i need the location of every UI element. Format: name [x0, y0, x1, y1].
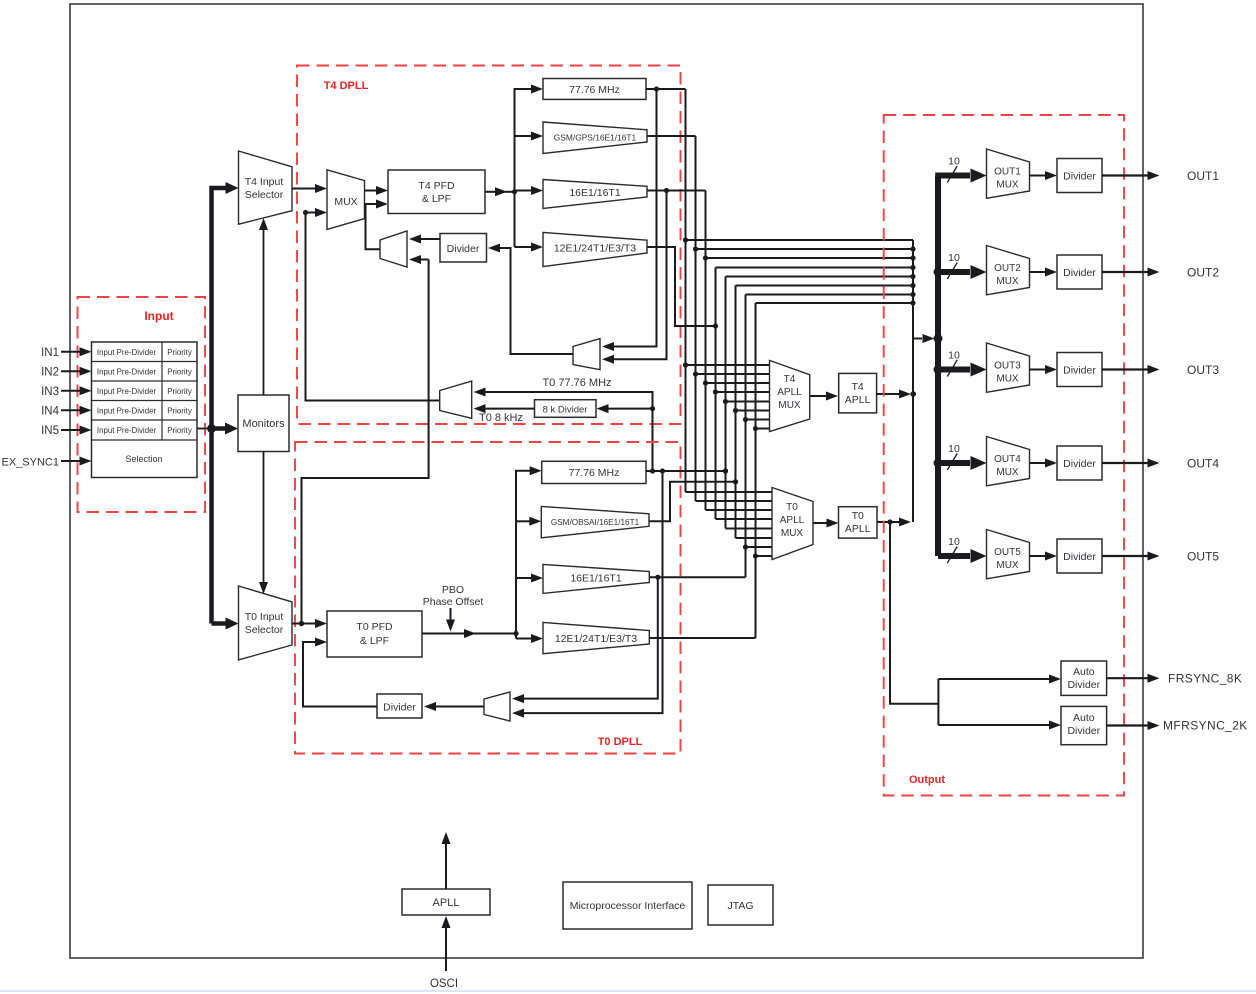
svg-text:Auto: Auto: [1073, 712, 1095, 724]
svg-text:& LPF: & LPF: [360, 635, 389, 647]
svg-text:OUT1: OUT1: [1187, 169, 1219, 183]
svg-text:Priority: Priority: [167, 348, 192, 357]
svg-text:OUT5: OUT5: [994, 547, 1021, 558]
svg-text:Divider: Divider: [1067, 725, 1100, 737]
svg-text:MUX: MUX: [334, 196, 357, 208]
svg-text:IN2: IN2: [41, 366, 59, 378]
svg-text:Divider: Divider: [447, 243, 480, 255]
svg-text:Input Pre-Divider: Input Pre-Divider: [97, 426, 157, 435]
svg-text:T4 DPLL: T4 DPLL: [324, 80, 369, 92]
svg-text:Divider: Divider: [383, 702, 416, 714]
svg-text:16E1/16T1: 16E1/16T1: [569, 187, 621, 199]
svg-text:12E1/24T1/E3/T3: 12E1/24T1/E3/T3: [554, 243, 636, 255]
svg-text:Input Pre-Divider: Input Pre-Divider: [97, 367, 157, 376]
svg-text:APLL: APLL: [845, 394, 871, 406]
svg-text:OUT1: OUT1: [994, 167, 1021, 178]
svg-text:MFRSYNC_2K: MFRSYNC_2K: [1163, 719, 1248, 733]
svg-text:Divider: Divider: [1063, 267, 1096, 279]
svg-text:APLL: APLL: [777, 387, 802, 398]
svg-text:FRSYNC_8K: FRSYNC_8K: [1168, 672, 1242, 686]
svg-text:Selector: Selector: [245, 189, 284, 201]
svg-text:Priority: Priority: [167, 426, 192, 435]
svg-text:MUX: MUX: [996, 374, 1019, 385]
svg-text:Selection: Selection: [125, 454, 162, 464]
svg-text:77.76 MHz: 77.76 MHz: [569, 467, 620, 479]
svg-text:Priority: Priority: [167, 406, 192, 415]
svg-text:PBO: PBO: [442, 584, 464, 596]
svg-text:MUX: MUX: [996, 276, 1019, 287]
svg-text:IN3: IN3: [41, 386, 59, 398]
svg-text:T0 77.76 MHz: T0 77.76 MHz: [542, 377, 611, 389]
svg-text:T4 PFD: T4 PFD: [418, 180, 455, 192]
svg-text:MUX: MUX: [996, 180, 1019, 191]
svg-text:16E1/16T1: 16E1/16T1: [570, 573, 622, 585]
svg-text:OUT3: OUT3: [1187, 363, 1219, 377]
svg-text:10: 10: [948, 443, 960, 455]
svg-text:Divider: Divider: [1063, 365, 1096, 377]
svg-text:IN4: IN4: [41, 405, 60, 417]
svg-text:GSM/GPS/16E1/16T1: GSM/GPS/16E1/16T1: [554, 133, 637, 143]
svg-text:OUT5: OUT5: [1187, 550, 1219, 564]
svg-text:T4: T4: [784, 374, 796, 385]
svg-text:T4 Input: T4 Input: [245, 176, 284, 188]
svg-text:Input: Input: [144, 309, 173, 323]
svg-text:Priority: Priority: [167, 367, 192, 376]
svg-text:OUT3: OUT3: [994, 361, 1021, 372]
svg-text:MUX: MUX: [781, 528, 804, 539]
svg-text:OUT2: OUT2: [1187, 266, 1219, 280]
svg-text:12E1/24T1/E3/T3: 12E1/24T1/E3/T3: [555, 633, 637, 645]
svg-text:Divider: Divider: [1063, 458, 1096, 470]
svg-text:OUT2: OUT2: [994, 263, 1021, 274]
svg-text:T0: T0: [852, 510, 864, 522]
svg-text:Output: Output: [909, 774, 945, 786]
svg-text:10: 10: [948, 536, 960, 548]
svg-text:OSCI: OSCI: [430, 978, 458, 990]
svg-text:EX_SYNC1: EX_SYNC1: [2, 457, 59, 469]
svg-text:T0 PFD: T0 PFD: [356, 621, 393, 633]
svg-text:MUX: MUX: [996, 560, 1019, 571]
svg-text:MUX: MUX: [778, 400, 801, 411]
svg-text:Selector: Selector: [245, 624, 284, 636]
svg-text:Divider: Divider: [1063, 551, 1096, 563]
svg-text:8 k Divider: 8 k Divider: [543, 405, 588, 416]
svg-text:OUT4: OUT4: [1187, 457, 1219, 471]
svg-text:IN5: IN5: [41, 425, 59, 437]
svg-text:T0 Input: T0 Input: [245, 611, 284, 623]
svg-text:Divider: Divider: [1067, 679, 1100, 691]
svg-text:10: 10: [948, 156, 960, 168]
svg-text:GSM/OBSAI/16E1/16T1: GSM/OBSAI/16E1/16T1: [551, 518, 640, 527]
svg-text:Divider: Divider: [1063, 171, 1096, 183]
svg-text:Phase Offset: Phase Offset: [423, 596, 484, 608]
svg-text:10: 10: [948, 252, 960, 264]
svg-text:T0 DPLL: T0 DPLL: [598, 736, 643, 748]
svg-text:APLL: APLL: [433, 897, 460, 909]
svg-text:Monitors: Monitors: [242, 418, 285, 430]
svg-text:T0: T0: [786, 502, 798, 513]
svg-text:77.76 MHz: 77.76 MHz: [569, 84, 620, 96]
svg-text:Priority: Priority: [167, 387, 192, 396]
svg-text:APLL: APLL: [780, 515, 805, 526]
svg-text:T4: T4: [851, 381, 863, 393]
svg-text:T0 8 kHz: T0 8 kHz: [479, 412, 523, 424]
svg-text:Input Pre-Divider: Input Pre-Divider: [97, 406, 157, 415]
svg-text:OUT4: OUT4: [994, 454, 1021, 465]
svg-text:10: 10: [948, 350, 960, 362]
svg-text:Input Pre-Divider: Input Pre-Divider: [97, 348, 157, 357]
svg-text:Microprocessor Interface: Microprocessor Interface: [570, 900, 686, 912]
svg-text:Input Pre-Divider: Input Pre-Divider: [97, 387, 157, 396]
svg-text:APLL: APLL: [845, 523, 871, 535]
svg-text:Auto: Auto: [1073, 666, 1095, 678]
svg-text:JTAG: JTAG: [727, 900, 753, 912]
svg-text:MUX: MUX: [996, 467, 1019, 478]
svg-text:IN1: IN1: [41, 347, 59, 359]
svg-text:& LPF: & LPF: [422, 193, 451, 205]
